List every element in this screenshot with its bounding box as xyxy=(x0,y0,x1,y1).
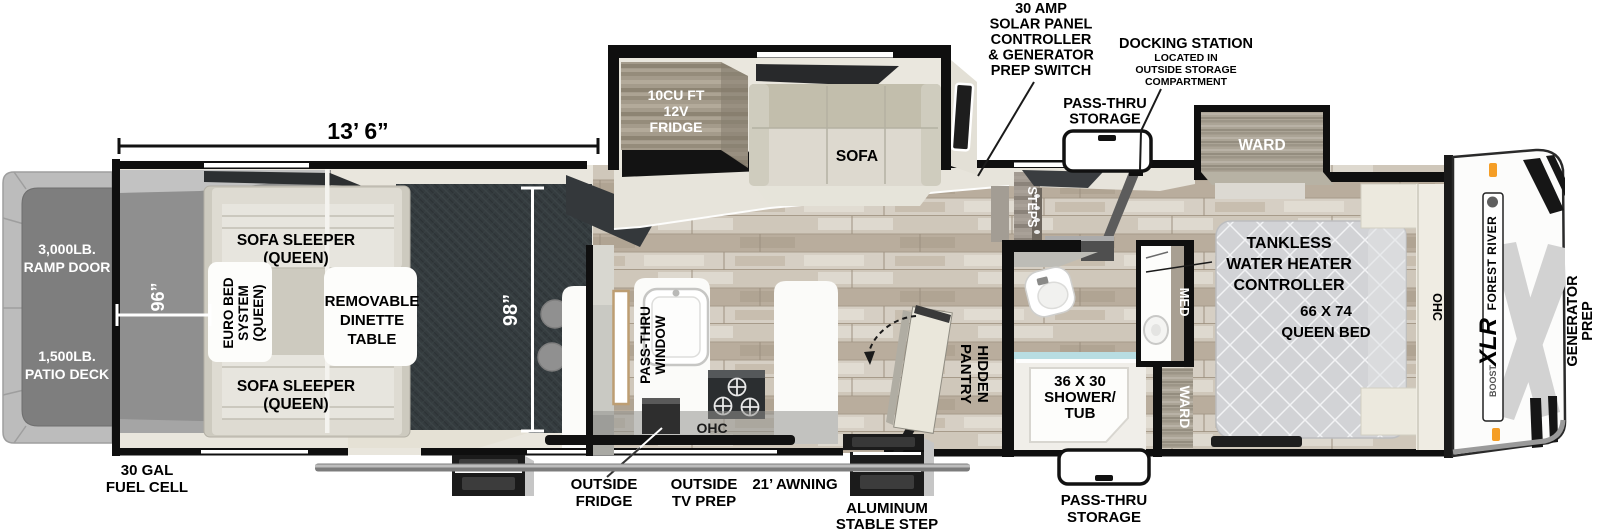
svg-text:COMPARTMENT: COMPARTMENT xyxy=(1145,76,1228,88)
svg-text:OUTSIDEFRIDGE: OUTSIDEFRIDGE xyxy=(571,476,638,510)
svg-text:(QUEEN): (QUEEN) xyxy=(263,250,328,267)
svg-text:SOFA: SOFA xyxy=(836,148,878,165)
svg-text:MED: MED xyxy=(1177,288,1192,317)
svg-text:HIDDENPANTRY: HIDDENPANTRY xyxy=(957,344,991,404)
svg-text:PASS-THRUSTORAGE: PASS-THRUSTORAGE xyxy=(1061,492,1147,526)
svg-text:STEPS: STEPS xyxy=(1025,187,1039,228)
svg-text:13’ 6”: 13’ 6” xyxy=(327,118,388,144)
svg-text:3,000LB.: 3,000LB. xyxy=(38,241,96,257)
svg-text:ALUMINUMSTABLE STEP: ALUMINUMSTABLE STEP xyxy=(836,500,938,529)
svg-text:BOOST: BOOST xyxy=(1488,365,1498,398)
svg-text:21’ AWNING: 21’ AWNING xyxy=(752,476,837,493)
svg-text:PASS-THRUWINDOW: PASS-THRUWINDOW xyxy=(638,306,668,384)
svg-text:96”: 96” xyxy=(148,282,168,311)
svg-text:OUTSIDE STORAGE: OUTSIDE STORAGE xyxy=(1135,64,1236,76)
svg-text:WARD: WARD xyxy=(1238,137,1285,154)
svg-text:OHC: OHC xyxy=(1430,293,1444,321)
svg-text:98”: 98” xyxy=(500,294,522,326)
svg-text:RAMP DOOR: RAMP DOOR xyxy=(24,259,111,275)
svg-text:(QUEEN): (QUEEN) xyxy=(263,396,328,413)
svg-text:EURO BEDSYSTEM(QUEEN): EURO BEDSYSTEM(QUEEN) xyxy=(221,277,266,349)
svg-text:1,500LB.: 1,500LB. xyxy=(38,348,96,364)
svg-text:LOCATED IN: LOCATED IN xyxy=(1154,52,1217,64)
svg-text:OUTSIDETV PREP: OUTSIDETV PREP xyxy=(671,476,738,510)
svg-text:PATIO DECK: PATIO DECK xyxy=(25,366,109,382)
svg-text:SOFA SLEEPER: SOFA SLEEPER xyxy=(237,232,355,249)
svg-text:XLR: XLR xyxy=(1475,317,1502,368)
svg-text:DOCKING STATION: DOCKING STATION xyxy=(1119,36,1253,52)
svg-text:WARD: WARD xyxy=(1177,386,1193,429)
svg-text:SOFA SLEEPER: SOFA SLEEPER xyxy=(237,378,355,395)
svg-text:OHC: OHC xyxy=(696,420,727,436)
svg-text:PASS-THRUSTORAGE: PASS-THRUSTORAGE xyxy=(1063,96,1147,128)
svg-text:FOREST RIVER: FOREST RIVER xyxy=(1485,216,1499,311)
